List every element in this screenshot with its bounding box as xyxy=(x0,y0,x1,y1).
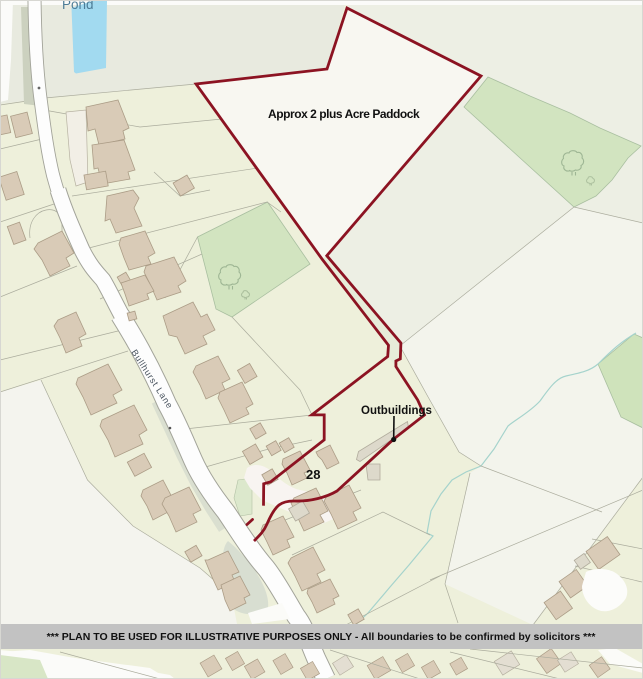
svg-text:*** PLAN TO BE USED FOR ILLUST: *** PLAN TO BE USED FOR ILLUSTRATIVE PUR… xyxy=(47,631,597,643)
svg-text:Approx 2 plus Acre Paddock: Approx 2 plus Acre Paddock xyxy=(268,107,420,121)
svg-text:28: 28 xyxy=(306,467,320,482)
svg-text:Pond: Pond xyxy=(62,0,94,12)
svg-text:Outbuildings: Outbuildings xyxy=(361,405,432,417)
